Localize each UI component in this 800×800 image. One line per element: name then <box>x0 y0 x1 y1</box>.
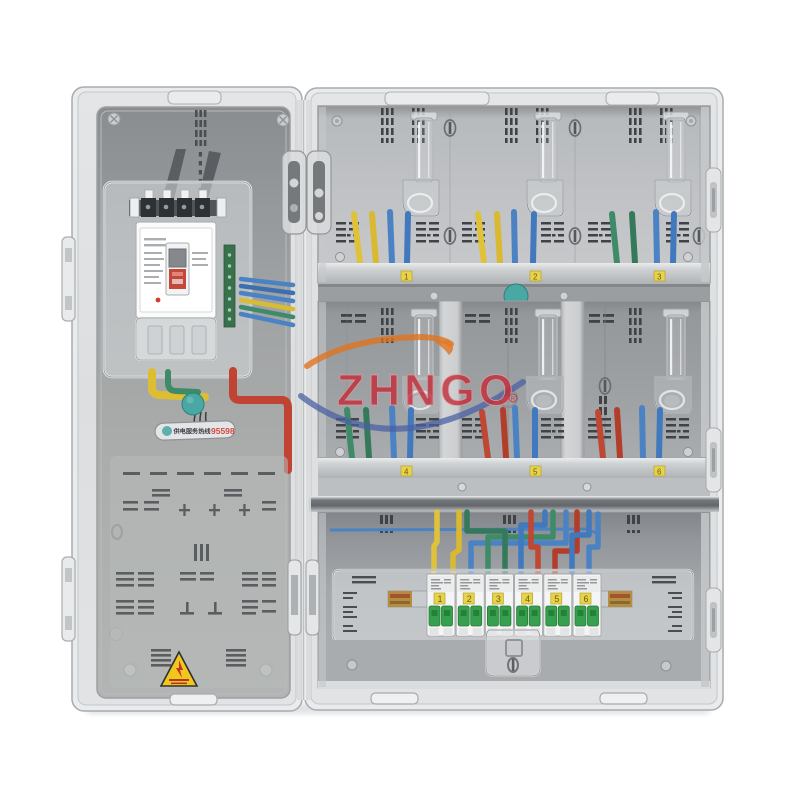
svg-text:5: 5 <box>554 594 559 604</box>
svg-text:1: 1 <box>404 273 409 282</box>
svg-text:3: 3 <box>496 594 501 604</box>
svg-text:6: 6 <box>657 468 662 477</box>
svg-text:4: 4 <box>404 468 409 477</box>
svg-text:2: 2 <box>467 594 472 604</box>
svg-text:5: 5 <box>533 468 538 477</box>
svg-text:R: R <box>511 397 516 403</box>
svg-text:ZHNGO: ZHNGO <box>337 366 517 415</box>
svg-text:供电服务热线: 供电服务热线 <box>173 428 212 436</box>
svg-text:3: 3 <box>657 273 662 282</box>
svg-text:95598: 95598 <box>211 426 235 436</box>
svg-text:1: 1 <box>438 594 443 604</box>
svg-text:6: 6 <box>584 594 589 604</box>
svg-text:2: 2 <box>533 273 538 282</box>
svg-text:4: 4 <box>525 594 530 604</box>
